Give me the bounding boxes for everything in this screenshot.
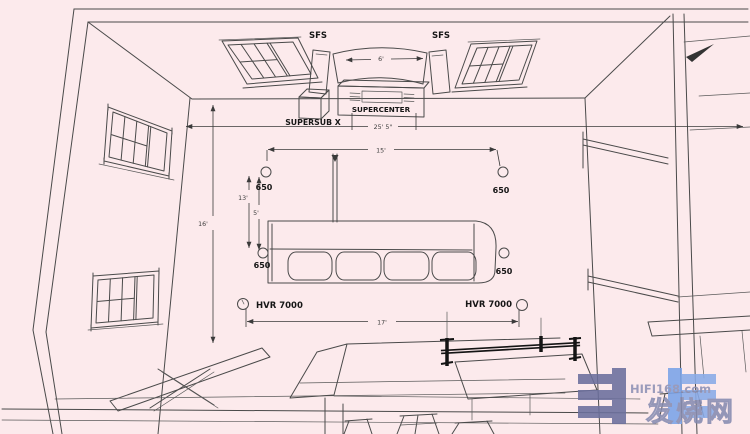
watermark-brand-text: 发烧网 <box>645 396 736 428</box>
center-speaker-label: SUPERCENTER <box>352 105 411 114</box>
rear-left-label: HVR 7000 <box>256 301 303 311</box>
dim-rear-spread-label: 17' <box>377 320 387 327</box>
floor-plan-drawing: 6' SFS SFS SUPERCENTER SUPERSUB X 25' 5"… <box>0 0 750 434</box>
dim-room-width-label: 25' 5" <box>374 124 393 131</box>
surround-rear-right-label: 650 <box>496 267 513 276</box>
front-speaker-left-label: SFS <box>309 31 327 41</box>
rear-right-label: HVR 7000 <box>465 300 512 310</box>
watermark-site-text: HIFI168.com <box>630 382 711 396</box>
dim-front-to-rear-label: 13' <box>238 195 248 202</box>
subwoofer-label: SUPERSUB X <box>285 118 341 127</box>
surround-front-left-label: 650 <box>256 183 273 192</box>
surround-front-right-label: 650 <box>493 186 510 195</box>
dim-sofa-distance-label: 5' <box>253 210 259 217</box>
dim-room-depth-label: 16' <box>198 221 208 228</box>
front-speaker-right-label: SFS <box>432 31 450 41</box>
surround-rear-left-label: 650 <box>254 261 271 270</box>
dim-screen-width-label: 6' <box>378 56 384 63</box>
drawing-background <box>0 0 750 434</box>
dim-front-stage-label: 15' <box>376 148 386 155</box>
